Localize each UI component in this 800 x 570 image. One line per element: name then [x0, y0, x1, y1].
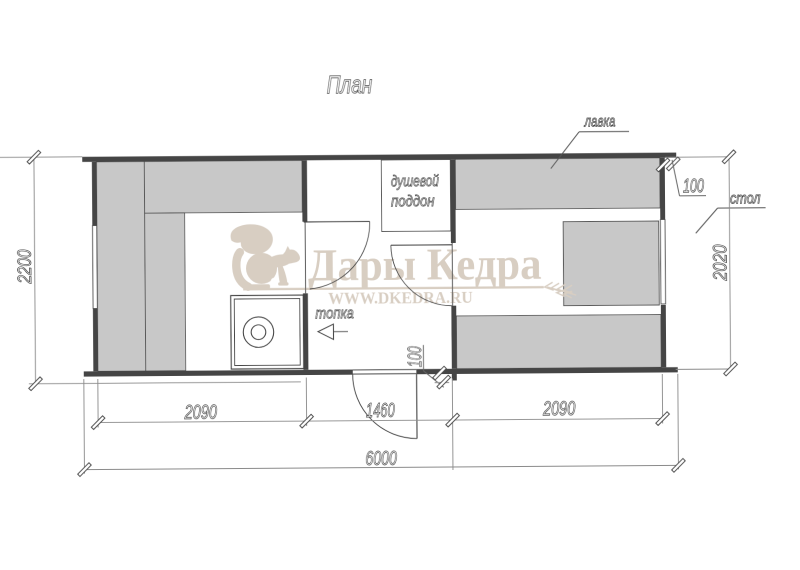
svg-text:лавка: лавка — [584, 113, 616, 130]
svg-text:топка: топка — [315, 305, 354, 322]
svg-text:поддон: поддон — [391, 193, 435, 210]
svg-text:6000: 6000 — [365, 448, 397, 470]
svg-text:2090: 2090 — [542, 398, 575, 420]
svg-text:2200: 2200 — [15, 249, 36, 284]
svg-text:стол: стол — [730, 190, 761, 207]
svg-text:100: 100 — [683, 176, 704, 197]
svg-text:1460: 1460 — [366, 400, 395, 422]
svg-text:Дары Кедра: Дары Кедра — [308, 239, 542, 291]
svg-text:душевой: душевой — [391, 173, 439, 190]
svg-text:2020: 2020 — [710, 244, 731, 281]
svg-text:План: План — [327, 71, 373, 99]
svg-text:2090: 2090 — [184, 401, 217, 423]
